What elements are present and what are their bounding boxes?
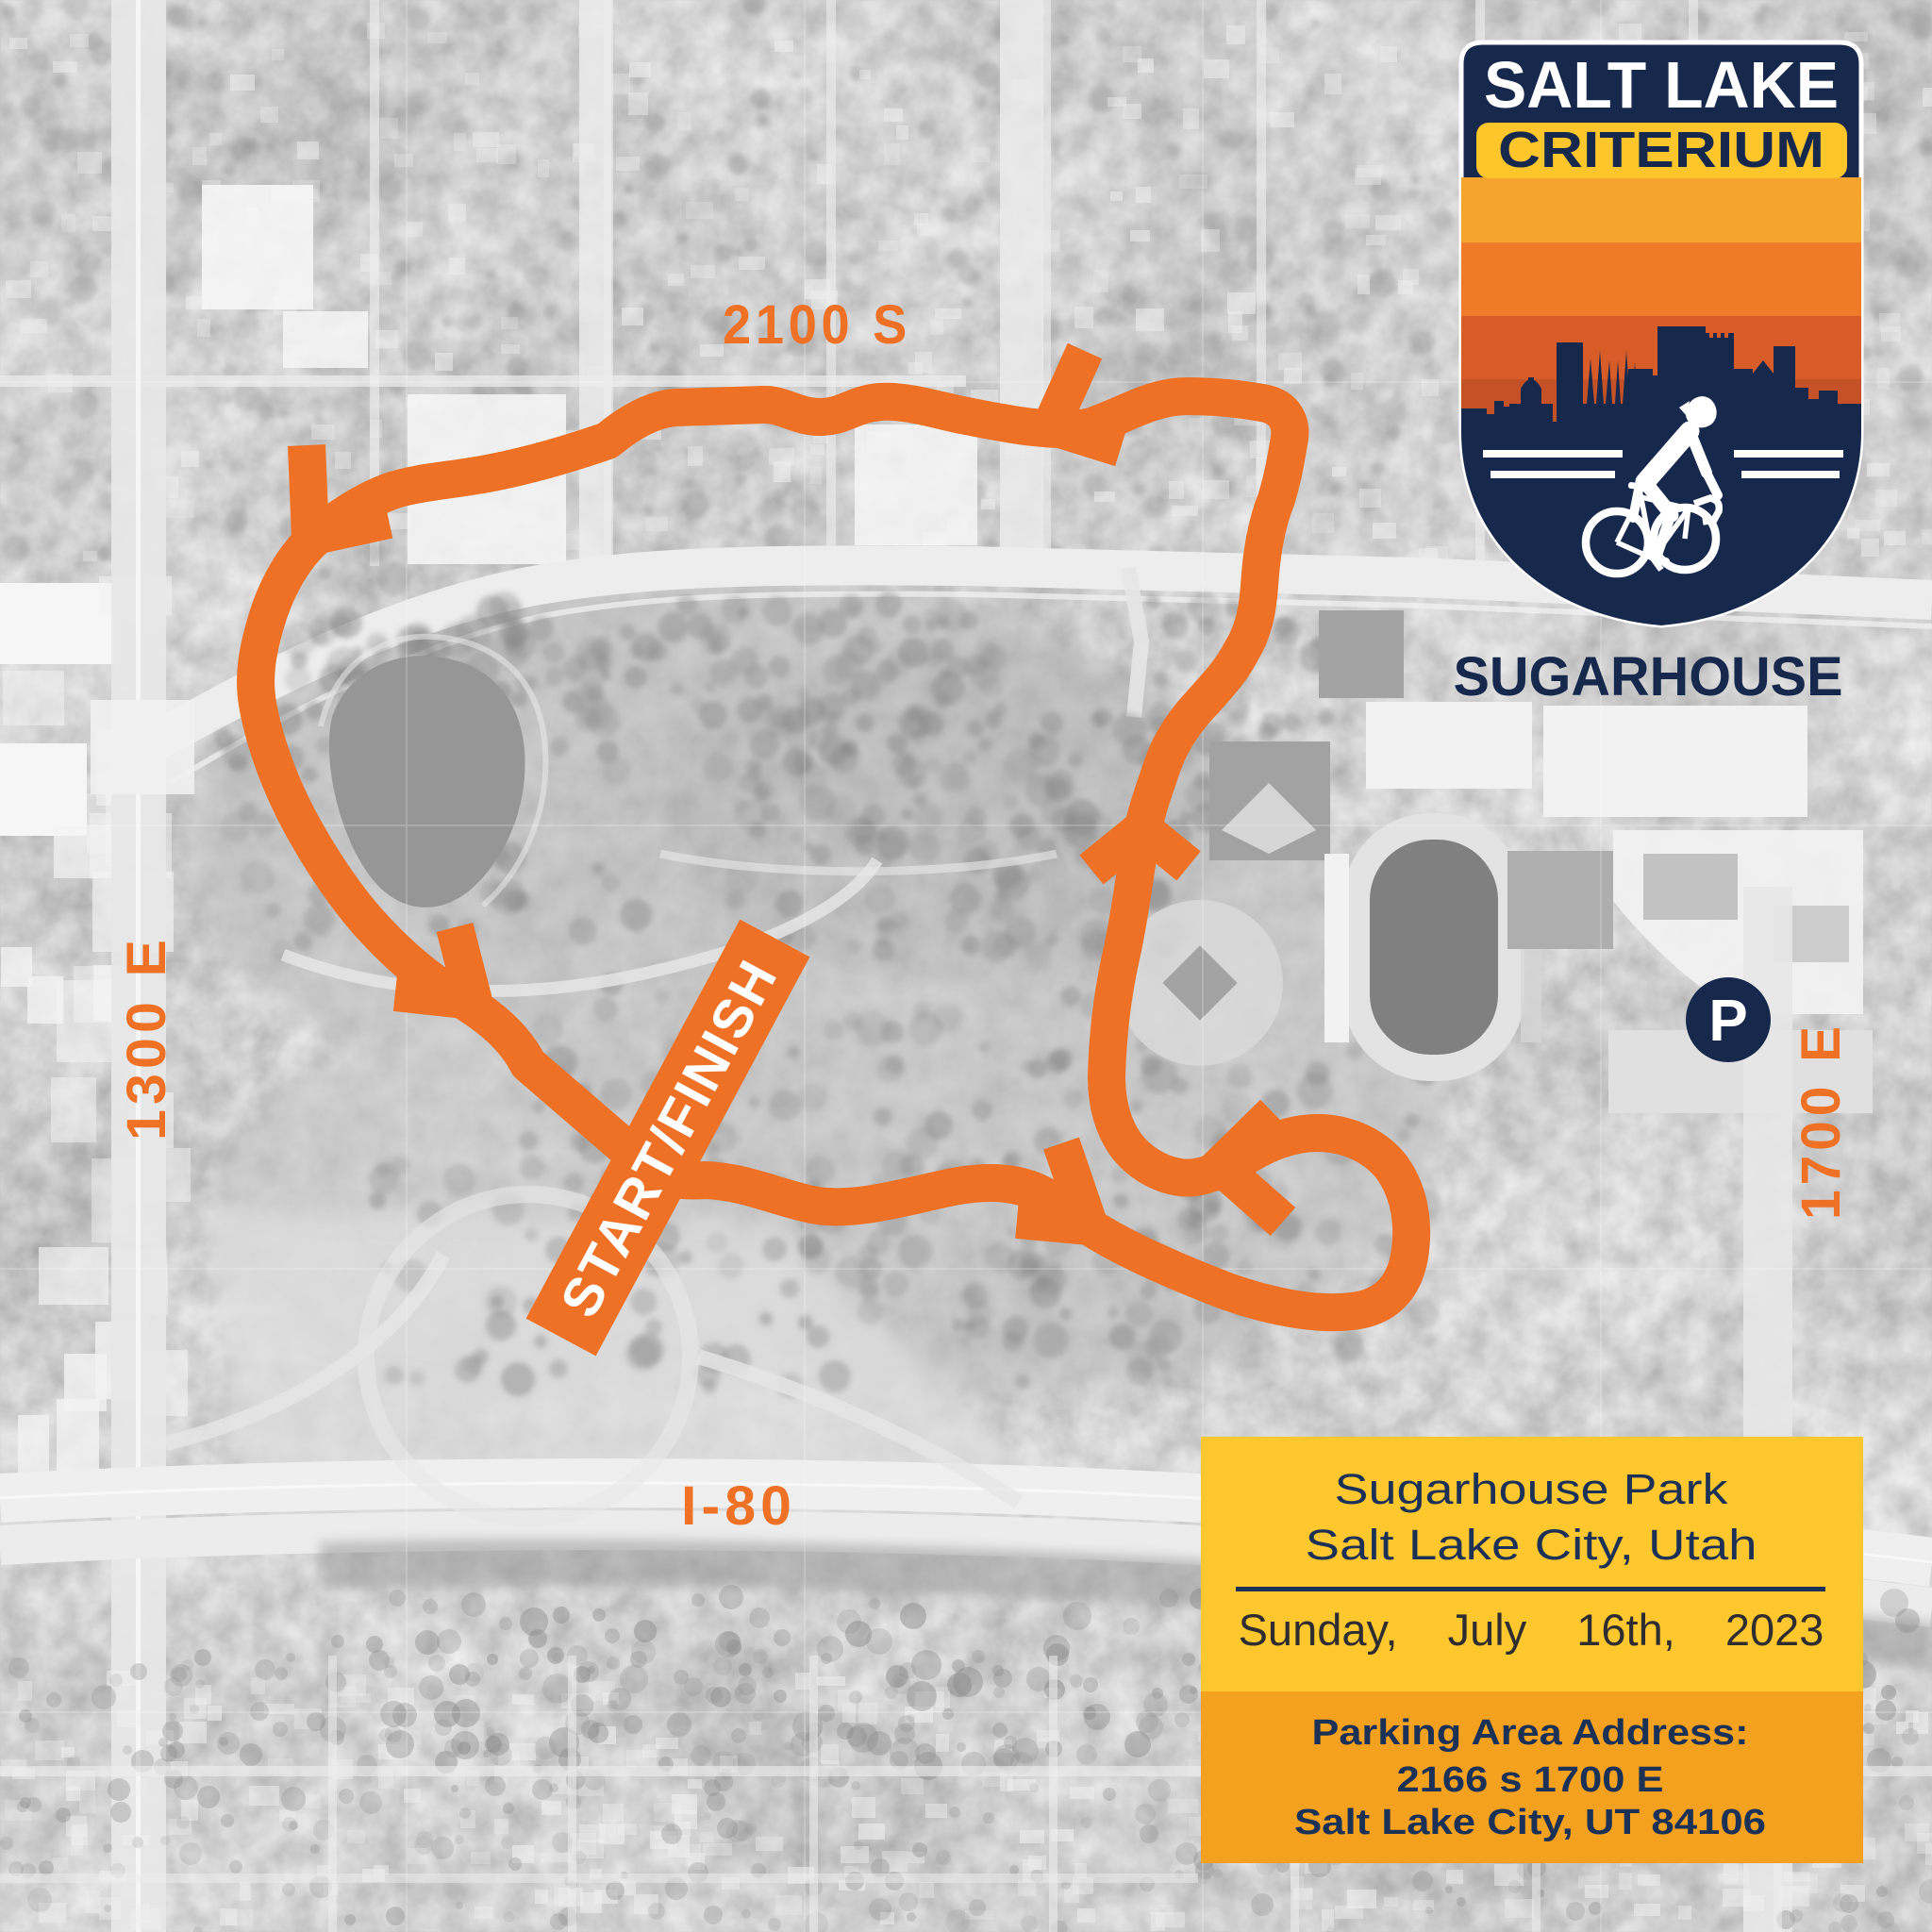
svg-text:I-80: I-80 — [681, 1475, 796, 1537]
svg-text:Salt Lake City, UT 84106: Salt Lake City, UT 84106 — [1294, 1803, 1766, 1842]
svg-text:1300 E: 1300 E — [116, 935, 177, 1141]
svg-text:SALT LAKE: SALT LAKE — [1484, 48, 1839, 122]
svg-text:Salt Lake City, Utah: Salt Lake City, Utah — [1306, 1521, 1757, 1569]
svg-text:CRITERIUM: CRITERIUM — [1498, 122, 1824, 178]
svg-text:Sugarhouse Park: Sugarhouse Park — [1335, 1465, 1729, 1513]
svg-text:SUGARHOUSE: SUGARHOUSE — [1454, 646, 1843, 708]
svg-text:2100 S: 2100 S — [723, 294, 911, 356]
svg-text:2166 s 1700 E: 2166 s 1700 E — [1397, 1760, 1664, 1800]
svg-text:1700 E: 1700 E — [1790, 1022, 1852, 1220]
svg-text:Sunday, July 16th, 2023: Sunday, July 16th, 2023 — [1239, 1605, 1824, 1655]
svg-text:P: P — [1708, 989, 1747, 1054]
svg-text:Parking Area Address:: Parking Area Address: — [1312, 1713, 1749, 1753]
